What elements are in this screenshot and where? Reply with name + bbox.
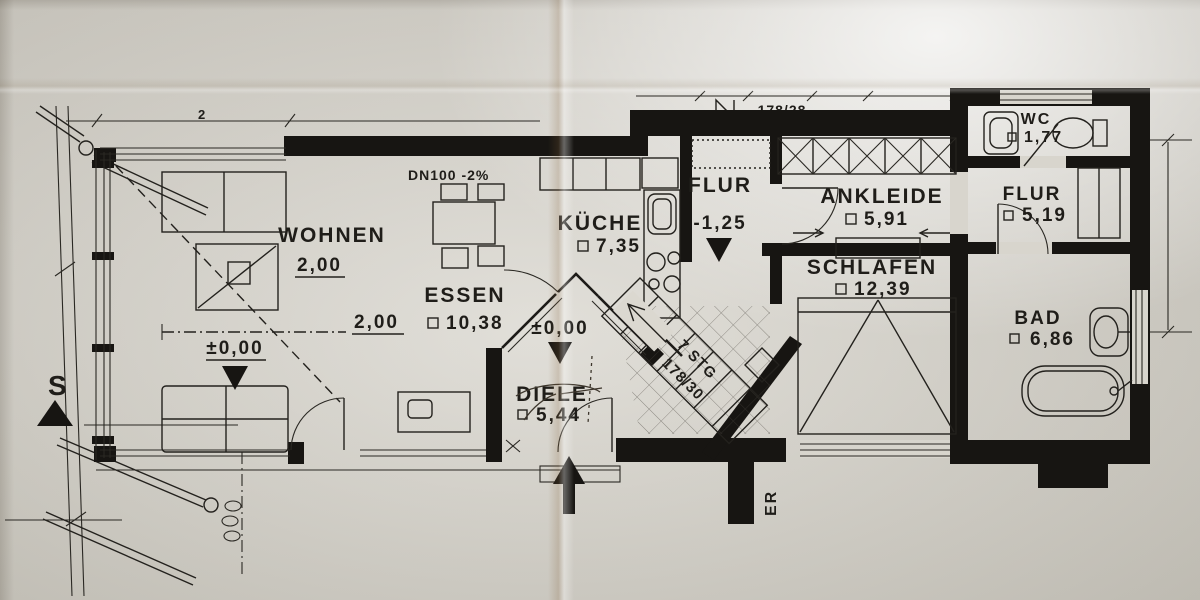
area-diele: 5,44 — [536, 405, 581, 426]
partial-dimension: 2 — [198, 107, 207, 122]
level-marker-icon — [706, 238, 732, 262]
entrance-arrow-icon — [553, 456, 585, 514]
tall-cabinet — [642, 158, 678, 188]
area-square-symbol — [1010, 334, 1019, 343]
south-arrow-icon — [37, 400, 73, 426]
level-wohnen: ±0,00 — [206, 338, 263, 359]
area-wohnen: 2,00 — [297, 255, 342, 276]
level-diele: ±0,00 — [531, 318, 588, 339]
label-kueche: KÜCHE — [558, 212, 643, 235]
area-bad: 6,86 — [1030, 329, 1075, 350]
area-kueche: 7,35 — [596, 236, 641, 257]
label-wohnen: WOHNEN — [278, 224, 386, 247]
area-square-symbol — [1004, 211, 1013, 220]
dimension-lines-right — [1148, 134, 1192, 338]
kitchen-sink — [648, 194, 676, 234]
label-ankleide: ANKLEIDE — [820, 185, 943, 208]
area-ankleide: 5,91 — [864, 209, 909, 230]
label-flur-rechts: FLUR — [1003, 184, 1062, 205]
label-wc: WC — [1021, 111, 1052, 128]
area-square-symbol — [846, 214, 856, 224]
label-bad: BAD — [1014, 308, 1061, 329]
area-square-symbol — [578, 241, 588, 251]
bed — [798, 298, 956, 434]
area-flur-rechts: 5,19 — [1022, 205, 1067, 226]
height-line-value: 2,00 — [354, 312, 399, 333]
south-orientation-marker: S — [37, 370, 73, 426]
area-schlafen: 12,39 — [854, 279, 912, 300]
downspout-pipe-bottom — [43, 438, 241, 585]
edge-text: ER — [763, 490, 780, 516]
area-square-symbol — [428, 318, 438, 328]
label-essen: ESSEN — [424, 284, 505, 307]
area-wc: 1,77 — [1024, 129, 1063, 146]
label-diele: DIELE — [516, 383, 588, 406]
level-flur-mitte: -1,25 — [693, 213, 746, 234]
south-label: S — [48, 370, 69, 401]
drain-note: DN100 -2% — [408, 167, 489, 183]
flur-rechts-wardrobe — [1078, 168, 1120, 238]
area-square-symbol — [836, 284, 846, 294]
stove-burners — [647, 252, 680, 292]
floor-plan-drawing: S 178/28 — [0, 0, 1200, 600]
label-flur-mitte: FLUR — [688, 174, 752, 197]
level-marker-icon — [548, 342, 572, 364]
flur-mitte-cabinet — [692, 140, 770, 168]
label-schlafen: SCHLAFEN — [807, 256, 937, 279]
area-essen: 10,38 — [446, 313, 504, 334]
